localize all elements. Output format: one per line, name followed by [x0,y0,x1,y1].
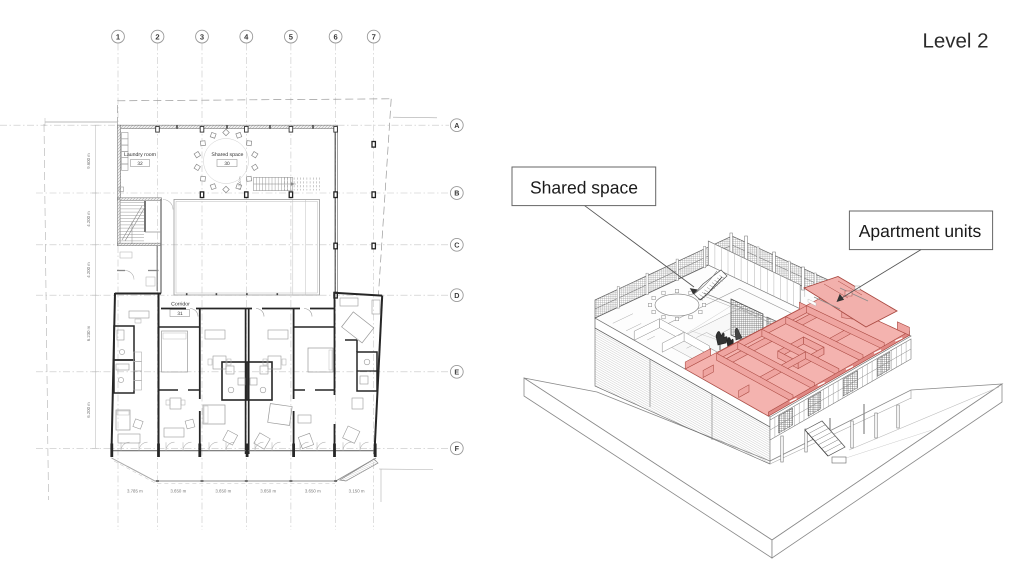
svg-text:4.200 m: 4.200 m [86,211,91,227]
svg-text:31: 31 [177,311,183,317]
svg-text:3: 3 [200,32,204,41]
svg-text:32: 32 [137,161,143,167]
svg-text:3.150 m: 3.150 m [349,488,365,493]
svg-text:F: F [455,444,460,453]
svg-text:4.200 m: 4.200 m [86,262,91,278]
svg-text:3.650 m: 3.650 m [260,488,276,493]
svg-text:3.785 m: 3.785 m [127,488,143,493]
svg-text:Laundry room: Laundry room [124,152,156,158]
svg-text:1.300 m: 1.300 m [238,177,242,190]
svg-text:C: C [454,240,459,249]
svg-text:Level 2: Level 2 [922,30,988,53]
svg-text:6.230 m: 6.230 m [86,325,91,341]
svg-text:3.650 m: 3.650 m [170,488,186,493]
svg-text:Shared space: Shared space [530,178,638,198]
svg-text:Shared space: Shared space [211,152,243,158]
svg-text:3.650 m: 3.650 m [305,488,321,493]
svg-text:9.600 m: 9.600 m [86,153,91,169]
svg-text:D: D [454,291,459,300]
svg-text:7: 7 [372,32,376,41]
svg-text:2: 2 [155,32,159,41]
svg-text:Apartment units: Apartment units [859,221,982,241]
svg-text:A: A [454,121,459,130]
svg-text:3.650 m: 3.650 m [215,488,231,493]
svg-text:6: 6 [333,32,337,41]
svg-text:Corridor: Corridor [171,302,190,308]
svg-text:30: 30 [224,161,230,167]
svg-text:E: E [454,367,459,376]
svg-text:B: B [454,189,459,198]
svg-text:6.200 m: 6.200 m [86,402,91,418]
